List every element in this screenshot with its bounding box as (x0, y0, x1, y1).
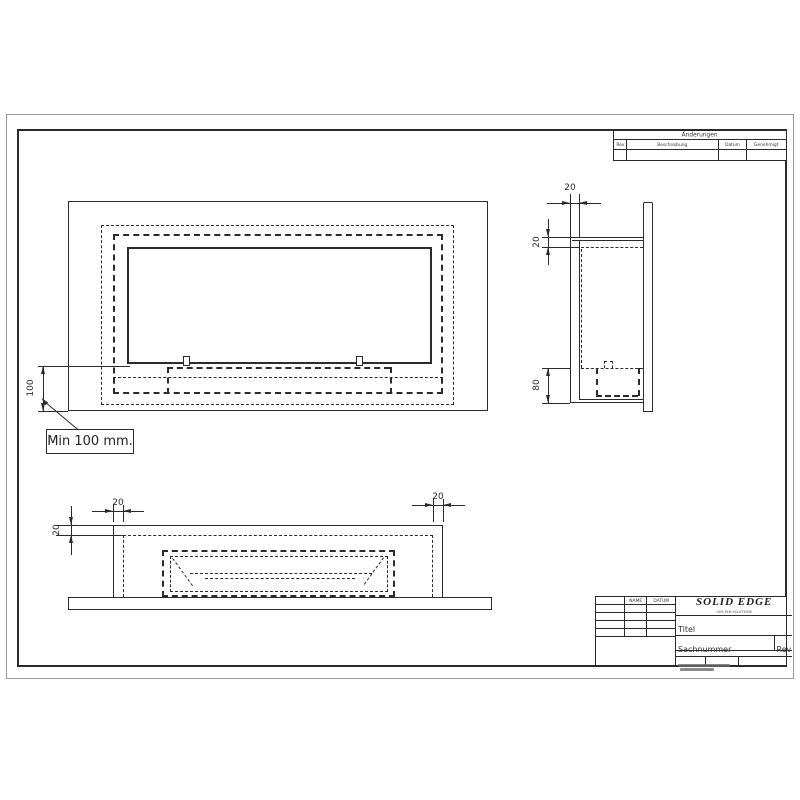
dim-arrow (546, 229, 550, 237)
hidden-line (581, 368, 643, 369)
side-burner-hidden (596, 395, 638, 397)
dimension-line (412, 505, 465, 506)
revision-col-genehmigt: Genehmigt (754, 142, 778, 146)
extension-line (570, 194, 571, 237)
dim-arrow (69, 517, 73, 525)
burner-hidden-top (167, 367, 390, 369)
min-distance-callout: Min 100 mm. (46, 429, 134, 454)
dimension-line (548, 219, 549, 265)
revision-col-beschreibung: Beschreibung (657, 142, 687, 146)
burner-hidden-side (167, 367, 169, 394)
burner-clip (356, 356, 363, 366)
title-block: NAME DATUM Gezeichnet Geprüft SOLID EDGE… (595, 596, 787, 666)
side-box-inner-wall (579, 241, 580, 399)
extension-line (542, 403, 570, 404)
dim-text-20: 20 (52, 520, 62, 540)
dimension-line (71, 506, 72, 555)
extension-line (38, 366, 130, 367)
logo-title: SOLID EDGE (696, 597, 772, 608)
side-burner-hidden (596, 368, 598, 396)
sachnummer-cell: Sachnummer (676, 636, 775, 650)
name-column-header: NAME (629, 598, 642, 602)
dim-arrow (425, 503, 433, 507)
dim-text-20: 20 (560, 183, 580, 193)
side-clip-hidden (604, 361, 613, 368)
extension-line (433, 499, 434, 522)
dim-arrow (546, 247, 550, 255)
burner-hidden-side (390, 367, 392, 394)
side-burner-hidden (638, 368, 640, 396)
titel-label: Titel (678, 625, 695, 634)
dim-text-20: 20 (428, 492, 448, 502)
dim-text-80: 80 (532, 375, 542, 395)
title-block-signatures: NAME DATUM Gezeichnet Geprüft (596, 597, 676, 665)
bottom-wall-plate (68, 597, 492, 610)
side-box-inner-top (572, 240, 643, 241)
dim-arrow (105, 509, 113, 513)
extension-line (56, 525, 113, 526)
logo-subtitle: UGS PLM SOLUTIONS (716, 610, 751, 613)
burner-clip (183, 356, 190, 366)
datum-column-header: DATUM (653, 598, 669, 602)
dim-arrow (443, 503, 451, 507)
dim-text-100: 100 (26, 377, 36, 399)
burner-tray-hidden-inner (170, 556, 388, 592)
hidden-line (190, 573, 372, 574)
dimension-line (92, 511, 144, 512)
dim-arrow (562, 201, 570, 205)
dim-arrow (546, 395, 550, 403)
revision-table: Änderungen Rev Beschreibung Datum Genehm… (613, 131, 787, 161)
dim-text-20: 20 (532, 232, 542, 252)
dim-arrow (123, 509, 131, 513)
dateiname-entry (678, 664, 730, 667)
solid-edge-logo: SOLID EDGE UGS PLM SOLUTIONS (676, 597, 792, 616)
extension-line (542, 237, 570, 238)
hidden-line (205, 578, 355, 579)
revision-table-title: Änderungen (682, 132, 718, 138)
sachnummer-entry (680, 668, 714, 671)
dim-arrow (546, 368, 550, 376)
extension-line (56, 535, 123, 536)
hidden-line (581, 247, 643, 248)
dimension-line (547, 203, 601, 204)
revision-col-datum: Datum (725, 142, 740, 146)
side-box-inner-bottom (579, 399, 643, 400)
hidden-line (581, 249, 582, 368)
revision-col-rev: Rev (616, 142, 624, 146)
front-window-opening (127, 247, 432, 364)
drawing-page: Änderungen Rev Beschreibung Datum Genehm… (0, 0, 800, 800)
extension-line (38, 411, 68, 412)
side-wall-plate (643, 202, 653, 412)
hidden-line (113, 377, 443, 378)
dim-arrow (41, 366, 45, 374)
dim-text-20: 20 (108, 498, 128, 508)
dim-arrow (579, 201, 587, 205)
dim-arrow (69, 535, 73, 543)
blatt-label: Blatt 1 von 1 (741, 666, 792, 667)
